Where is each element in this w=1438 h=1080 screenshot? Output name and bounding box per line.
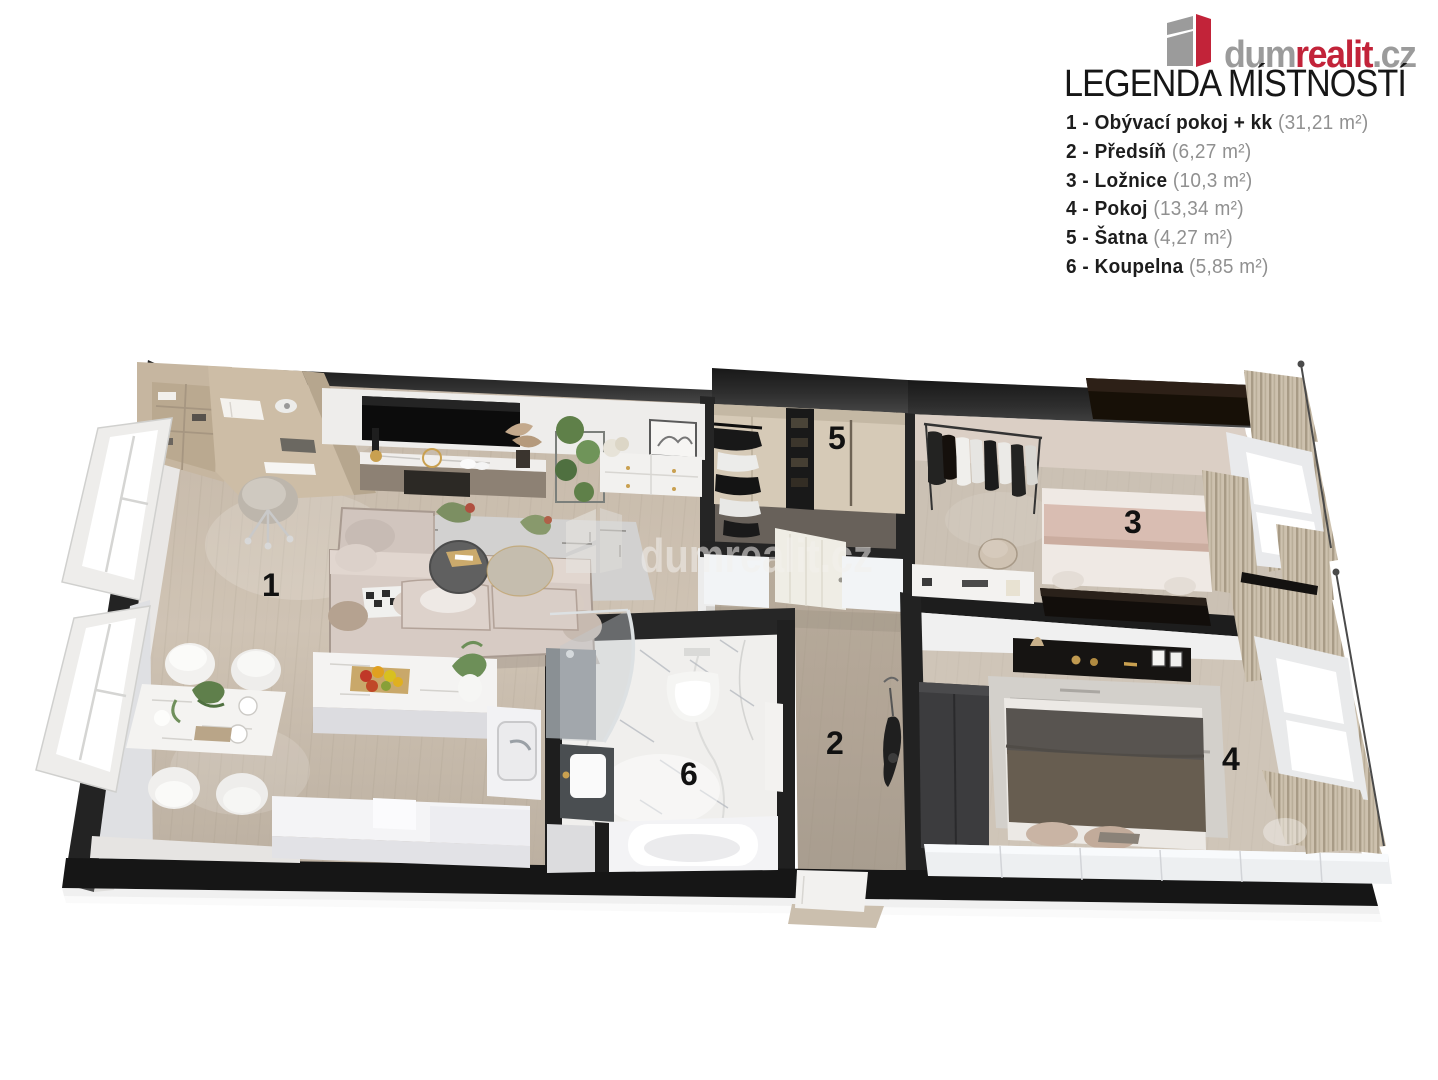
svg-text:3: 3 [1124, 504, 1142, 540]
svg-text:4: 4 [1222, 741, 1240, 777]
svg-text:5: 5 [828, 420, 846, 456]
svg-text:6: 6 [680, 756, 698, 792]
svg-text:2: 2 [826, 725, 844, 761]
svg-text:dumrealit.cz: dumrealit.cz [640, 529, 873, 582]
svg-text:1: 1 [262, 567, 280, 603]
